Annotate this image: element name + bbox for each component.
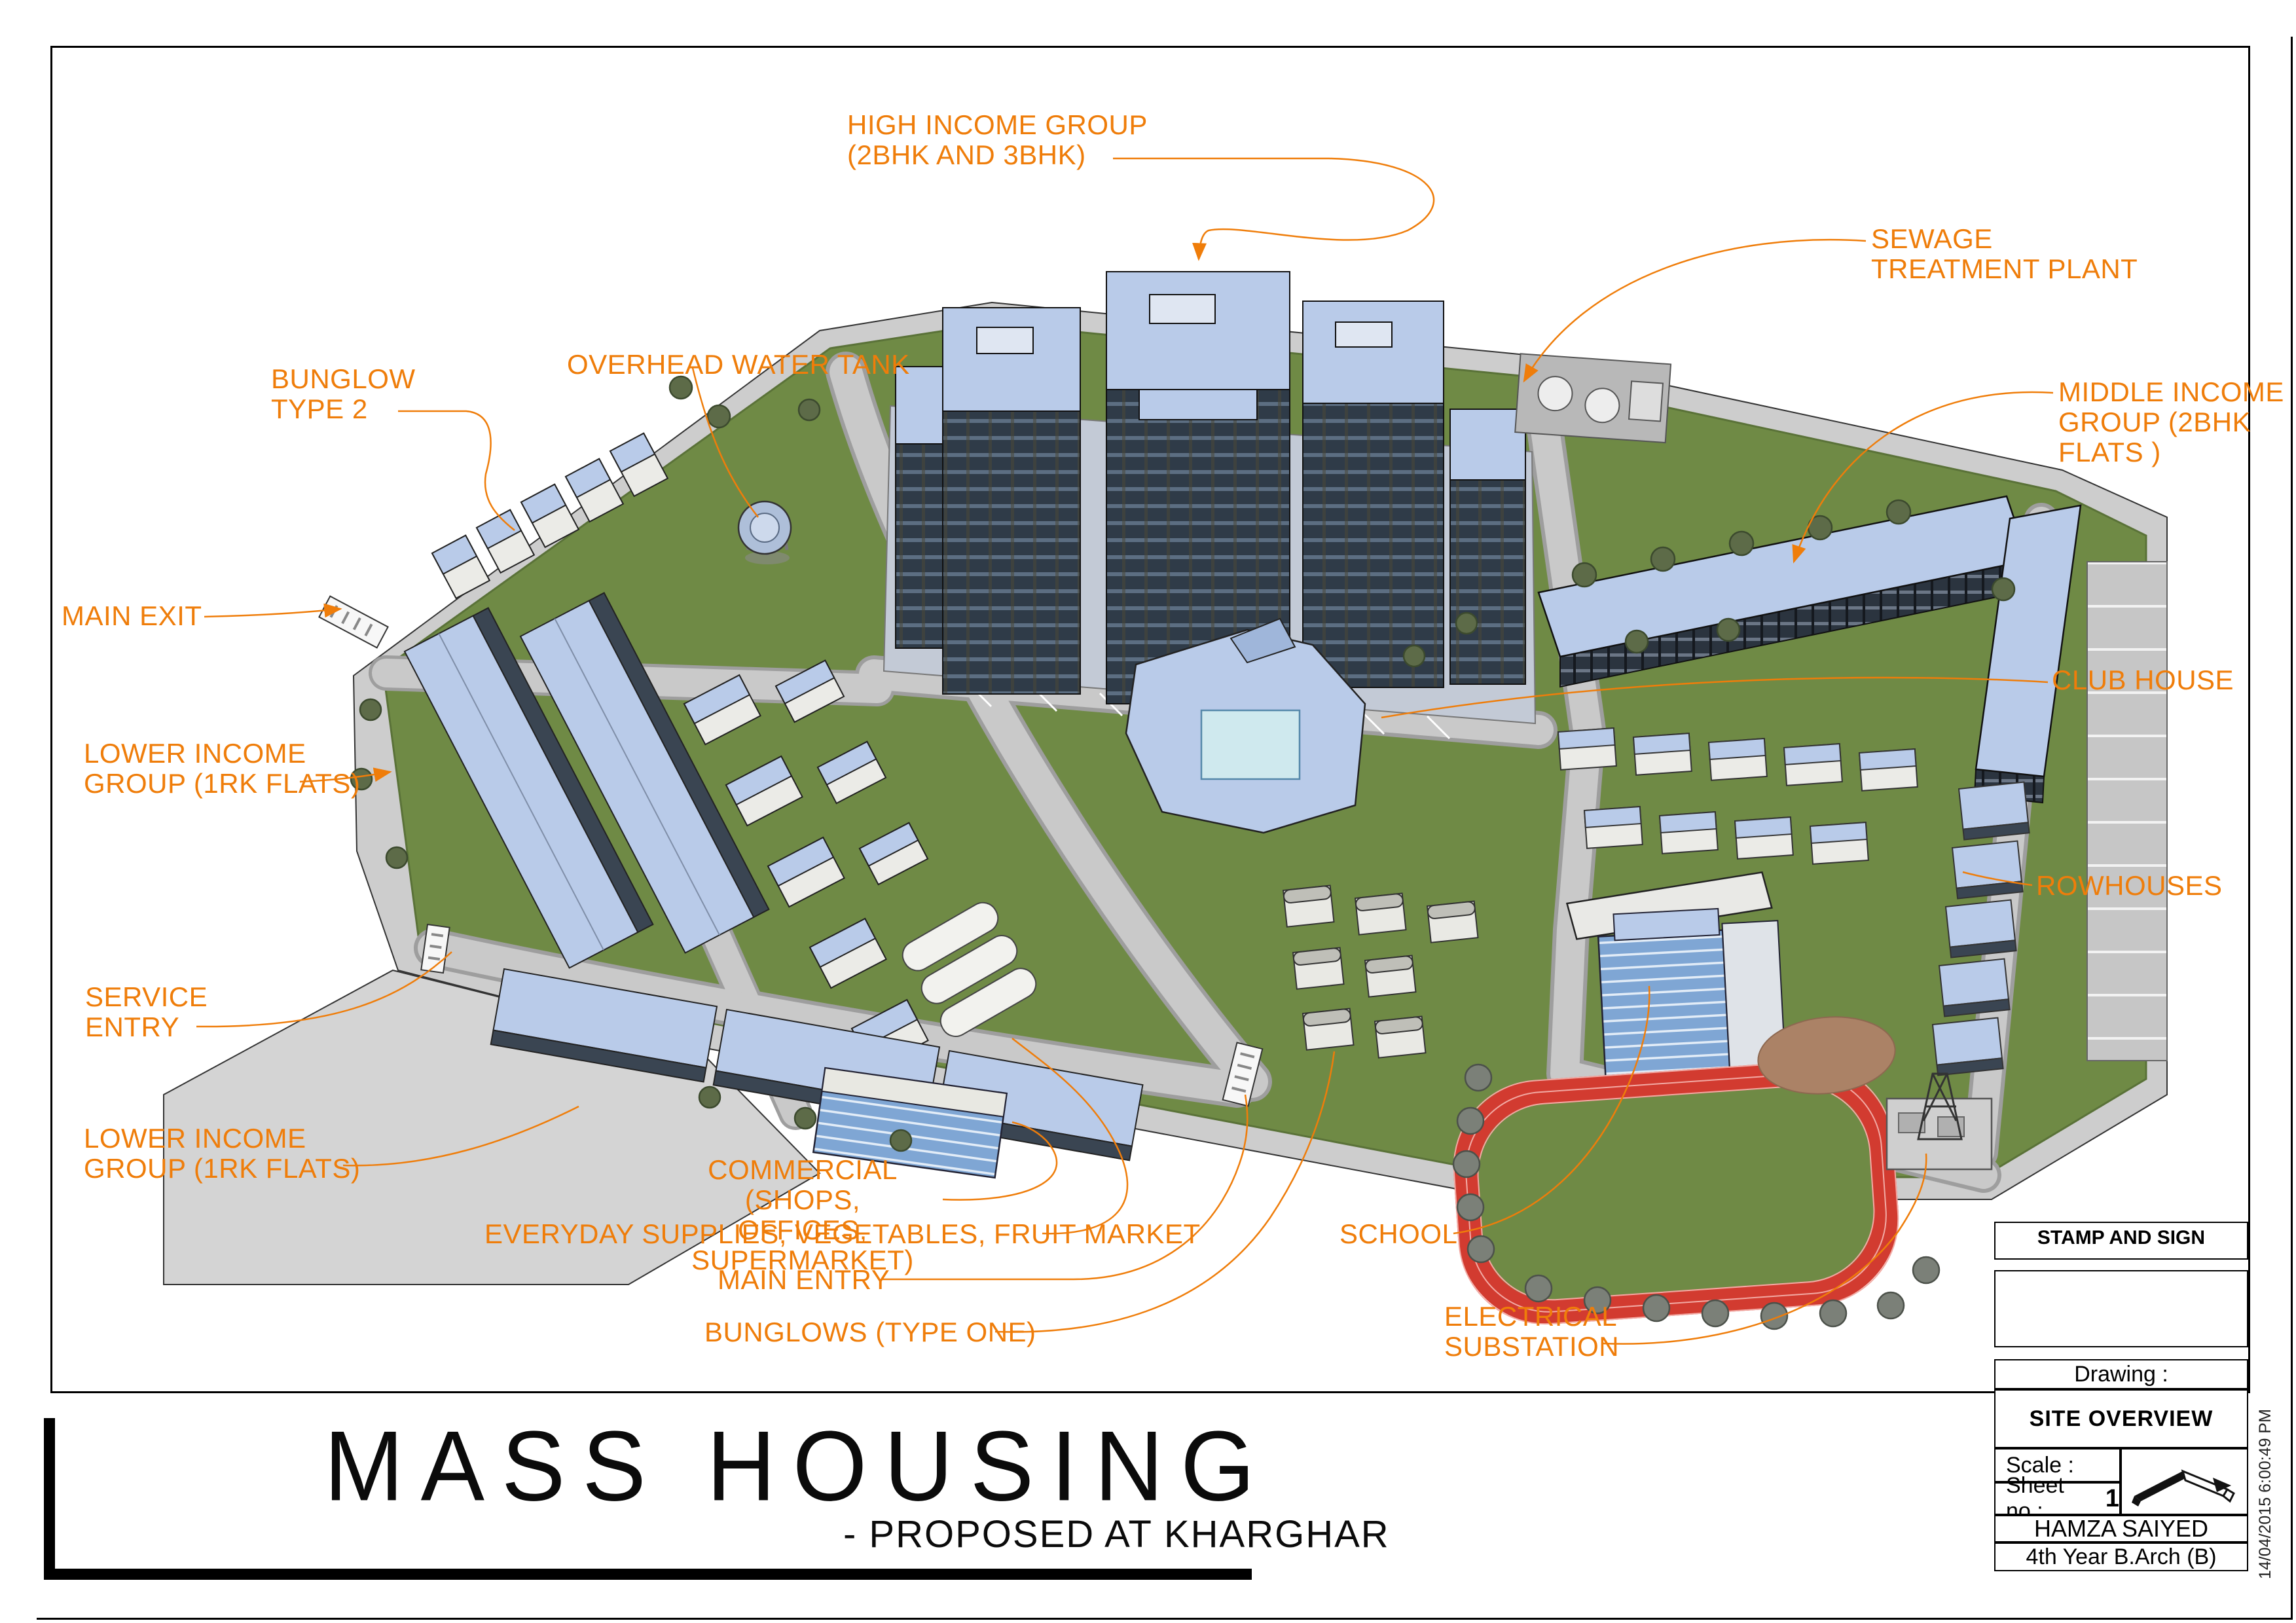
drawing-sheet: HIGH INCOME GROUP(2BHK AND 3BHK) SEWAGET… xyxy=(0,0,2296,1623)
label-high-income-group: HIGH INCOME GROUP(2BHK AND 3BHK) xyxy=(847,110,1148,170)
sheet-number: 1 xyxy=(2105,1485,2119,1513)
sheet-border-right xyxy=(2291,37,2293,1620)
label-bunglow-type-2: BUNGLOWTYPE 2 xyxy=(271,364,416,424)
drawing-label-box: Drawing : xyxy=(1994,1359,2248,1389)
label-club-house: CLUB HOUSE xyxy=(2052,665,2234,695)
sheet-no-box: Sheet no : 1 xyxy=(1994,1482,2121,1515)
title-border-vertical xyxy=(44,1418,55,1579)
label-main-entry: MAIN ENTRY xyxy=(718,1265,890,1295)
label-sewage-treatment-plant: SEWAGETREATMENT PLANT xyxy=(1871,224,2138,284)
label-rowhouses: ROWHOUSES xyxy=(2036,871,2223,901)
stamp-empty-box xyxy=(1994,1270,2248,1347)
label-commercial: COMMERCIAL (SHOPS,OFFICES, SUPERMARKET) xyxy=(663,1155,943,1275)
stamp-and-sign-box: STAMP AND SIGN xyxy=(1994,1222,2248,1260)
plot-timestamp: 14/04/2015 6:00:49 PM xyxy=(2256,1481,2275,1579)
label-bunglows-type-one: BUNGLOWS (TYPE ONE) xyxy=(704,1317,1036,1347)
label-lower-income-group-lower: LOWER INCOMEGROUP (1RK FLATS) xyxy=(84,1123,360,1184)
drawing-name-box: SITE OVERVIEW xyxy=(1994,1389,2248,1448)
sheet-border-bottom xyxy=(37,1618,2293,1620)
label-main-exit: MAIN EXIT xyxy=(62,601,202,631)
class-year-box: 4th Year B.Arch (B) xyxy=(1994,1542,2248,1571)
label-lower-income-group-upper: LOWER INCOMEGROUP (1RK FLATS) xyxy=(84,739,360,799)
title-border-horizontal xyxy=(44,1569,1252,1580)
author-box: HAMZA SAIYED xyxy=(1994,1515,2248,1542)
label-everyday-supplies: EVERYDAY SUPPLIES, VEGETABLES, FRUIT MAR… xyxy=(484,1219,1201,1249)
label-school: SCHOOL xyxy=(1339,1219,1457,1249)
label-middle-income-group: MIDDLE INCOMEGROUP (2BHKFLATS ) xyxy=(2058,377,2284,467)
label-service-entry: SERVICEENTRY xyxy=(85,982,208,1042)
revit-arrow-logo xyxy=(2129,1455,2240,1508)
logo-box xyxy=(2121,1448,2248,1515)
label-overhead-water-tank: OVERHEAD WATER TANK xyxy=(567,350,910,380)
label-electrical-substation: ELECTRICALSUBSTATION xyxy=(1444,1302,1619,1362)
project-title: MASS HOUSING xyxy=(324,1409,1272,1523)
project-subtitle: - PROPOSED AT KHARGHAR xyxy=(843,1512,1390,1556)
